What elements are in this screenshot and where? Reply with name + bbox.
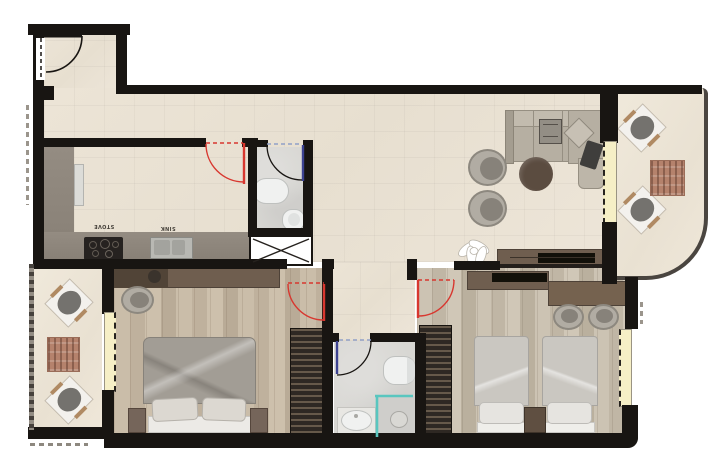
wall-bedroom2-right-top bbox=[625, 277, 638, 329]
master-chair bbox=[121, 286, 154, 314]
shower-drain bbox=[390, 411, 408, 428]
window-bedroom2 bbox=[619, 329, 632, 407]
wall-living-bedroom2 bbox=[460, 261, 500, 270]
dimension-ticks-left bbox=[26, 105, 29, 205]
sink-label: SINK bbox=[153, 225, 183, 231]
entry-door-opening bbox=[36, 38, 45, 80]
master-side-table bbox=[128, 408, 146, 433]
chair-seat bbox=[561, 309, 578, 323]
wall-master-right bbox=[322, 259, 333, 445]
bathroom1-vanity bbox=[253, 178, 289, 204]
dimension-ticks-bottom bbox=[30, 443, 88, 446]
master-side-table bbox=[250, 408, 268, 433]
wall-bathroom1-top bbox=[257, 140, 268, 147]
window-master-balcony bbox=[104, 312, 116, 392]
sofa-seam bbox=[562, 111, 563, 161]
sink-basin bbox=[154, 240, 170, 255]
master-bed-blanket bbox=[143, 337, 256, 404]
bedroom2-nightstand bbox=[524, 407, 546, 433]
tv-living bbox=[538, 253, 595, 263]
balcony-left-railing bbox=[29, 264, 34, 430]
balcony-right-mat bbox=[650, 160, 685, 196]
bed2a-pillow bbox=[479, 402, 524, 424]
window-living-balcony bbox=[603, 141, 617, 224]
sink-faucet bbox=[354, 414, 358, 418]
tray-line bbox=[543, 124, 558, 125]
desk-object bbox=[148, 270, 161, 283]
bedroom2-chair bbox=[588, 304, 619, 330]
wall-balcony-left-divider-top bbox=[102, 259, 114, 314]
master-pillow bbox=[202, 397, 247, 422]
stove-label: STOVE bbox=[85, 223, 123, 229]
wall-master-top bbox=[33, 259, 287, 269]
wall-bathroom2-right bbox=[415, 333, 426, 444]
living-armchair bbox=[468, 190, 507, 227]
sofa-seam bbox=[533, 111, 534, 161]
stove-burner bbox=[89, 241, 97, 249]
coffee-table bbox=[519, 157, 553, 191]
bedroom2-chair bbox=[553, 304, 584, 330]
wall-kitchen-top bbox=[44, 138, 206, 147]
corridor-floor bbox=[330, 262, 415, 341]
wall-entry-right bbox=[116, 33, 127, 88]
bed2b-blanket bbox=[542, 336, 598, 406]
armchair-seat bbox=[480, 198, 503, 221]
stove-burner bbox=[112, 241, 119, 248]
master-wardrobe bbox=[290, 328, 323, 441]
bed2a-blanket bbox=[474, 336, 529, 406]
wall-corridor-right-stub bbox=[407, 259, 417, 280]
armchair-seat bbox=[480, 157, 503, 180]
sofa-armrest bbox=[505, 110, 514, 164]
living-armchair bbox=[468, 149, 507, 186]
chair-seat bbox=[596, 309, 613, 323]
apartment-floor-plan: STOVE SINK bbox=[0, 0, 724, 459]
wall-entry-stub bbox=[40, 86, 54, 100]
wall-bathroom1-left bbox=[248, 140, 257, 236]
wall-console-divider bbox=[500, 264, 604, 268]
stove-burner bbox=[92, 250, 99, 257]
wall-bottom-main bbox=[104, 433, 638, 448]
balcony-left-mat bbox=[47, 337, 80, 372]
wall-living-right-top bbox=[600, 85, 618, 143]
chair-seat bbox=[130, 292, 149, 308]
sofa-tray-table bbox=[539, 119, 562, 144]
console-line bbox=[510, 257, 595, 258]
wall-bathroom1-right bbox=[303, 140, 313, 236]
stove-burner bbox=[100, 239, 110, 249]
wall-bathroom2-top-left bbox=[326, 333, 339, 342]
stove-burner bbox=[105, 250, 113, 258]
sink-basin bbox=[172, 240, 185, 255]
tv-bedroom2 bbox=[492, 273, 547, 282]
wall-balcony-left-bottom bbox=[28, 427, 110, 439]
toilet-bowl bbox=[288, 213, 300, 226]
kitchen-fridge bbox=[74, 164, 84, 206]
entry-floor bbox=[44, 33, 116, 93]
wall-living-right-bottom bbox=[602, 222, 617, 284]
master-pillow bbox=[151, 397, 198, 422]
bedroom2-desk bbox=[548, 281, 626, 306]
bed2b-pillow bbox=[547, 402, 592, 424]
dimension-ticks-right bbox=[640, 302, 643, 324]
tray-line bbox=[543, 136, 558, 137]
